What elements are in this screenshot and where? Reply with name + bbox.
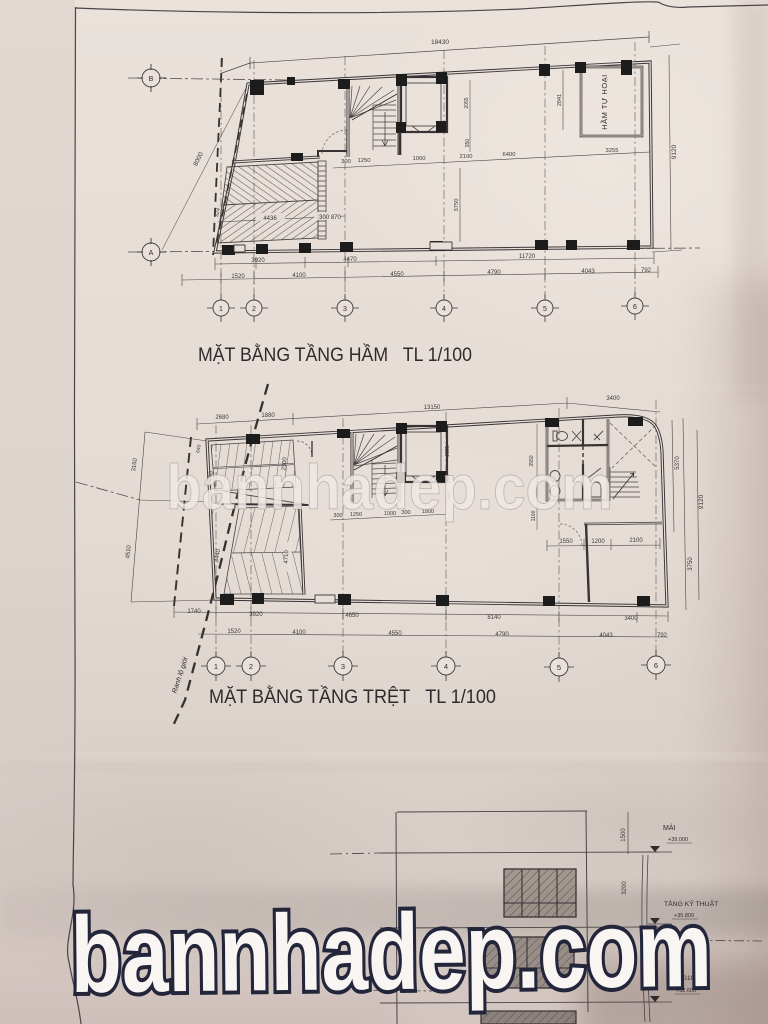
svg-text:2680: 2680 (215, 415, 229, 421)
svg-text:3750: 3750 (688, 557, 694, 571)
svg-text:1880: 1880 (261, 413, 275, 419)
svg-text:9120: 9120 (671, 144, 678, 159)
svg-text:1250: 1250 (358, 158, 371, 164)
svg-text:B: B (149, 76, 154, 83)
svg-text:4: 4 (442, 306, 446, 313)
svg-text:3400: 3400 (624, 616, 638, 622)
svg-text:4650: 4650 (345, 613, 359, 619)
svg-text:6: 6 (654, 661, 658, 670)
svg-text:5: 5 (557, 663, 561, 672)
svg-text:792: 792 (641, 268, 652, 274)
svg-text:HẦM TỰ HOẠI: HẦM TỰ HOẠI (599, 74, 609, 130)
svg-text:3400: 3400 (606, 396, 620, 402)
svg-text:2100: 2100 (629, 538, 643, 544)
svg-text:4550: 4550 (388, 631, 402, 637)
svg-text:3: 3 (343, 306, 347, 313)
svg-text:3: 3 (341, 662, 345, 671)
svg-text:4470: 4470 (343, 257, 357, 263)
svg-text:3920: 3920 (249, 612, 263, 618)
svg-text:1: 1 (214, 662, 218, 671)
svg-text:3255: 3255 (606, 148, 619, 154)
svg-text:A: A (149, 250, 154, 257)
svg-text:bannhadep.com: bannhadep.com (70, 888, 712, 1015)
svg-text:4: 4 (444, 662, 448, 671)
svg-text:1: 1 (219, 306, 223, 313)
svg-text:1500: 1500 (621, 828, 627, 842)
svg-text:bannhadep.com: bannhadep.com (166, 453, 613, 523)
svg-text:2: 2 (249, 662, 253, 671)
svg-text:5: 5 (543, 306, 547, 313)
svg-text:1000: 1000 (413, 156, 426, 162)
svg-text:792: 792 (657, 633, 668, 639)
svg-text:6400: 6400 (503, 152, 516, 158)
svg-text:3920: 3920 (251, 258, 265, 264)
svg-text:4790: 4790 (495, 632, 509, 638)
svg-text:4710: 4710 (284, 550, 290, 564)
svg-text:4043: 4043 (599, 633, 613, 639)
svg-text:6: 6 (633, 304, 637, 311)
svg-text:2100: 2100 (460, 154, 473, 160)
svg-text:+39.000: +39.000 (668, 837, 688, 843)
svg-text:4436: 4436 (263, 216, 277, 222)
svg-text:1550: 1550 (559, 539, 573, 545)
svg-text:2: 2 (252, 306, 256, 313)
svg-text:2841: 2841 (557, 94, 563, 106)
svg-text:1200: 1200 (591, 539, 605, 545)
svg-text:5370: 5370 (675, 456, 681, 470)
svg-text:18430: 18430 (431, 39, 449, 46)
svg-text:MÁI: MÁI (663, 823, 676, 832)
svg-text:8140: 8140 (487, 615, 501, 621)
svg-text:4100: 4100 (292, 630, 306, 636)
svg-text:1520: 1520 (227, 629, 241, 635)
svg-text:11720: 11720 (519, 254, 536, 260)
svg-text:300: 300 (341, 159, 351, 165)
svg-text:3750: 3750 (454, 199, 460, 212)
svg-text:4043: 4043 (581, 269, 595, 275)
svg-text:2055: 2055 (464, 97, 470, 108)
svg-text:4550: 4550 (390, 272, 404, 278)
svg-text:MẶT BẰNG TẦNG TRỆT TL 1/100: MẶT BẰNG TẦNG TRỆT TL 1/100 (209, 684, 496, 708)
svg-text:300 870: 300 870 (319, 215, 341, 221)
svg-text:1520: 1520 (231, 274, 245, 280)
svg-text:13150: 13150 (424, 405, 441, 411)
svg-text:1740: 1740 (187, 609, 201, 615)
svg-text:4790: 4790 (487, 270, 501, 276)
svg-text:MẶT BẰNG TẦNG HẦM TL 1/100: MẶT BẰNG TẦNG HẦM TL 1/100 (198, 342, 472, 366)
svg-text:9120: 9120 (698, 494, 705, 509)
svg-text:950: 950 (465, 139, 471, 148)
svg-text:4100: 4100 (292, 273, 306, 279)
